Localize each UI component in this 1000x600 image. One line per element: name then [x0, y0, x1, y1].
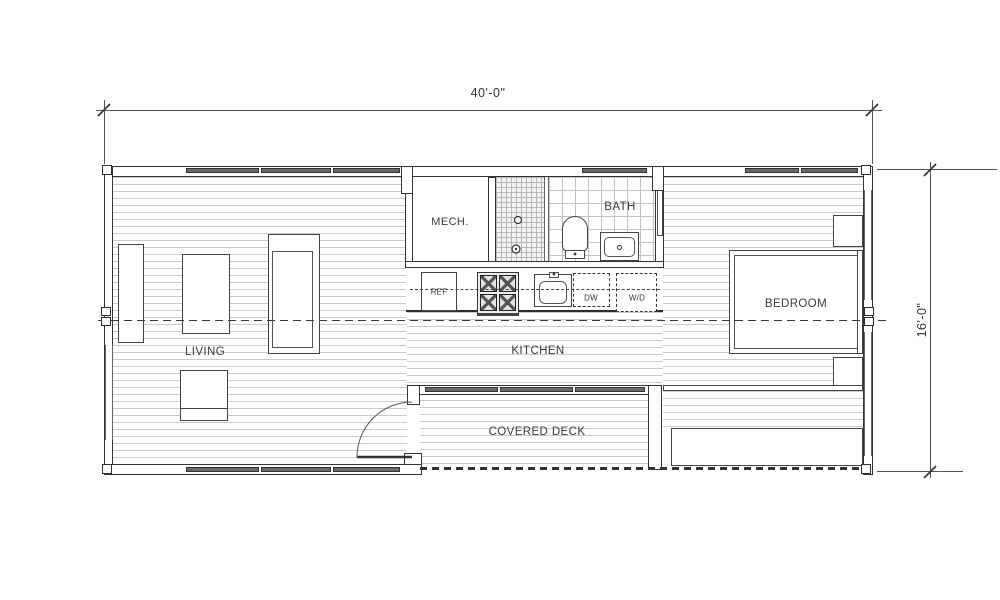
washer-dryer-label: W/D: [629, 294, 645, 303]
living-window-left: [105, 345, 113, 440]
deck-open-edge: [420, 467, 865, 470]
extension-line-16-bottom: [877, 471, 963, 472]
toilet: [562, 216, 588, 252]
deck-floor-right: [663, 391, 863, 428]
kitchen-sink-basin: [539, 281, 567, 304]
centerline: [98, 320, 886, 322]
living-window-bottom-1: [186, 467, 259, 472]
stove: [477, 272, 519, 316]
deck-window-1: [425, 387, 498, 392]
deck-window-2: [500, 387, 573, 392]
kitchen-faucet: [549, 272, 559, 278]
burner-icon: [499, 294, 516, 311]
centerline-marker-left: [101, 317, 111, 326]
floor-plan: REF DW W/D: [0, 0, 1000, 600]
deck-right-wall: [648, 385, 662, 470]
kitchen-back-wall: [405, 261, 664, 268]
corner-post-bl: [102, 464, 112, 474]
bedroom-window-right-2: [864, 332, 872, 456]
washer-dryer: [616, 273, 657, 312]
corner-post-tl: [102, 165, 112, 175]
burner-icon: [480, 294, 497, 311]
bath-faucet: [617, 245, 622, 250]
corner-post-tr: [861, 165, 871, 175]
centerline-marker-right: [864, 307, 874, 316]
room-label-mech: MECH.: [431, 216, 468, 228]
refrigerator-label: REF: [431, 288, 448, 297]
dishwasher-label: DW: [584, 294, 598, 303]
living-window-top-1: [186, 168, 259, 173]
sofa-left: [118, 244, 144, 343]
deck-left-wall-top: [407, 385, 420, 405]
toilet-tank: [565, 250, 585, 259]
bedroom-window-right-1: [864, 190, 872, 300]
bedroom-window-top-1: [745, 168, 799, 173]
bedroom-window-top-2: [801, 168, 858, 173]
deck-window-3: [575, 387, 645, 392]
dimension-label-width: 40'-0": [388, 84, 588, 102]
wall-jog-bedroom: [652, 166, 664, 191]
room-label-bedroom: BEDROOM: [765, 298, 827, 310]
centerline-marker-left: [101, 307, 111, 316]
room-label-kitchen: KITCHEN: [511, 345, 564, 357]
media-table: [180, 370, 228, 421]
room-label-living: LIVING: [185, 346, 225, 358]
bedroom-deck-wall: [663, 385, 863, 391]
living-window-bottom-2: [261, 467, 331, 472]
shower-glass-partition: [544, 177, 549, 263]
chaise-seat: [272, 251, 313, 348]
bath-window-top: [582, 168, 647, 173]
mech-right-wall: [488, 177, 496, 265]
room-label-bath: BATH: [604, 201, 635, 213]
living-window-top-2: [261, 168, 331, 173]
dimension-label-height: 16'-0": [913, 290, 931, 350]
living-window-bottom-3: [333, 467, 400, 472]
living-window-top-3: [333, 168, 400, 173]
bath-pocket-door: [657, 188, 663, 236]
nightstand-top: [833, 215, 863, 247]
extension-line-16-top: [877, 169, 997, 170]
table-chairs: [182, 254, 230, 334]
centerline-marker-right: [864, 317, 874, 326]
dimension-line-40: [96, 110, 882, 111]
shower-floor: [496, 177, 544, 263]
media-table-line: [181, 408, 227, 409]
wall-jog-mech: [401, 166, 413, 194]
room-label-deck: COVERED DECK: [489, 426, 586, 438]
deck-bench: [671, 428, 863, 466]
corner-post-br: [861, 464, 871, 474]
counter-centerline: [410, 289, 660, 290]
